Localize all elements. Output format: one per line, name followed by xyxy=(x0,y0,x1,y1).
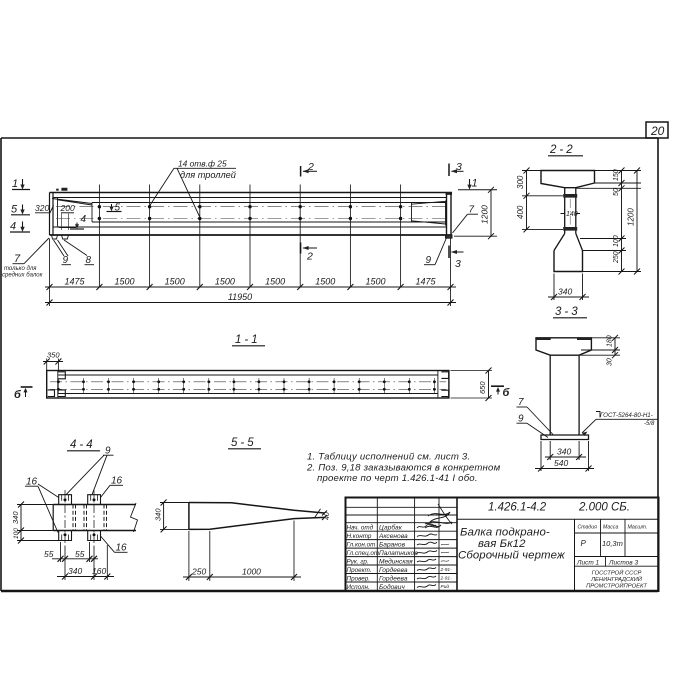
svg-text:Царбак: Царбак xyxy=(379,524,403,532)
svg-text:3-3: 3-3 xyxy=(555,306,581,318)
svg-text:проекте по черт 1.426.1-41 I: проекте по черт 1.426.1-41 I обо. xyxy=(317,473,478,484)
svg-text:Мединская: Мединская xyxy=(379,558,413,566)
svg-text:150: 150 xyxy=(613,169,620,181)
svg-text:1000: 1000 xyxy=(242,567,261,577)
svg-text:50: 50 xyxy=(613,188,620,196)
svg-text:Гордеева: Гордеева xyxy=(379,566,408,574)
svg-text:250: 250 xyxy=(613,251,620,264)
svg-text:2-2: 2-2 xyxy=(549,144,576,156)
svg-text:4-4: 4-4 xyxy=(70,439,96,451)
svg-text:2: 2 xyxy=(306,251,313,263)
svg-text:2-91-: 2-91- xyxy=(440,567,453,573)
svg-text:2. Поз. 9,18 заказываются в ко: 2. Поз. 9,18 заказываются в конкретном xyxy=(306,463,501,474)
svg-text:1. Таблицу исполнений см. лис: 1. Таблицу исполнений см. лист 3. xyxy=(307,452,470,463)
svg-text:Гл.кон.от: Гл.кон.от xyxy=(347,542,376,549)
svg-text:Исполн.: Исполн. xyxy=(347,584,370,591)
svg-text:180: 180 xyxy=(607,335,614,347)
svg-text:11950: 11950 xyxy=(228,292,252,302)
svg-text:350: 350 xyxy=(47,351,60,360)
svg-text:1475: 1475 xyxy=(415,277,436,287)
svg-text:20: 20 xyxy=(650,124,665,138)
svg-text:б: б xyxy=(503,387,511,399)
svg-text:ЛЕНИНГРАДСКИЙ: ЛЕНИНГРАДСКИЙ xyxy=(590,575,643,583)
svg-text:Проект.: Проект. xyxy=(347,567,372,574)
svg-text:540: 540 xyxy=(554,458,568,468)
svg-text:200: 200 xyxy=(60,203,75,213)
svg-text:Аксенова: Аксенова xyxy=(378,533,408,540)
svg-text:5: 5 xyxy=(11,204,18,216)
svg-text:340: 340 xyxy=(558,287,572,297)
svg-text:1500: 1500 xyxy=(265,277,285,287)
svg-text:Нач. отд: Нач. отд xyxy=(347,524,374,532)
svg-text:140: 140 xyxy=(566,211,578,218)
svg-text:340: 340 xyxy=(68,566,82,576)
svg-text:Гордеева: Гордеева xyxy=(379,575,408,583)
svg-text:340: 340 xyxy=(557,447,571,457)
svg-text:Провер.: Провер. xyxy=(347,576,370,583)
svg-text:1500: 1500 xyxy=(215,277,235,287)
svg-text:1: 1 xyxy=(12,178,18,190)
svg-text:Палатников: Палатников xyxy=(379,550,418,557)
svg-text:1200: 1200 xyxy=(480,205,490,224)
svg-text:340: 340 xyxy=(154,508,163,521)
svg-text:Сборочный чертеж: Сборочный чертеж xyxy=(458,550,566,562)
svg-text:Р: Р xyxy=(581,539,587,548)
svg-text:-5/8: -5/8 xyxy=(644,421,655,427)
svg-text:4: 4 xyxy=(10,221,16,233)
svg-text:100: 100 xyxy=(613,235,620,247)
svg-text:Н.контр: Н.контр xyxy=(347,533,372,540)
svg-text:Масшт.: Масшт. xyxy=(628,525,648,531)
svg-text:ГОССТРОЙ СССР: ГОССТРОЙ СССР xyxy=(592,569,642,577)
svg-text:1500: 1500 xyxy=(365,277,385,287)
svg-text:1500: 1500 xyxy=(165,277,185,287)
svg-text:4: 4 xyxy=(81,214,87,225)
svg-text:1500: 1500 xyxy=(114,277,134,287)
svg-text:б: б xyxy=(14,389,22,401)
svg-text:для троллей: для троллей xyxy=(180,170,236,180)
svg-text:Рид: Рид xyxy=(441,584,450,590)
svg-text:Лист 1: Лист 1 xyxy=(576,559,600,566)
svg-text:2-91-: 2-91- xyxy=(440,576,453,582)
svg-text:только для: только для xyxy=(4,266,37,272)
svg-text:400: 400 xyxy=(516,205,525,219)
svg-text:Рук. гр.: Рук. гр. xyxy=(347,559,369,566)
svg-text:2: 2 xyxy=(307,161,314,173)
svg-text:10,3т: 10,3т xyxy=(602,539,623,548)
svg-text:3: 3 xyxy=(456,161,462,173)
svg-text:1.426.1-4.2: 1.426.1-4.2 xyxy=(488,502,547,514)
svg-text:ГОСТ-5264-80-Н1-: ГОСТ-5264-80-Н1- xyxy=(600,412,653,419)
svg-text:7: 7 xyxy=(518,397,524,408)
svg-text:55: 55 xyxy=(44,549,54,559)
svg-text:Масса: Масса xyxy=(603,525,618,531)
svg-text:Баранов: Баранов xyxy=(379,542,406,549)
svg-text:40: 40 xyxy=(324,512,331,520)
svg-text:2.000 СБ.: 2.000 СБ. xyxy=(578,502,630,514)
svg-text:100: 100 xyxy=(13,528,20,539)
svg-text:55: 55 xyxy=(75,549,85,559)
svg-text:30: 30 xyxy=(607,358,614,366)
svg-text:Гл.спец.от: Гл.спец.от xyxy=(347,550,380,557)
svg-text:Бодович: Бодович xyxy=(379,583,405,591)
svg-text:средних балок: средних балок xyxy=(2,273,44,279)
svg-text:7: 7 xyxy=(14,253,21,265)
svg-text:160: 160 xyxy=(92,566,106,576)
svg-text:14 отв.ф 25: 14 отв.ф 25 xyxy=(178,159,227,169)
svg-text:1200: 1200 xyxy=(627,208,636,226)
svg-text:ПРОМСТРОЙПРОЕКТ: ПРОМСТРОЙПРОЕКТ xyxy=(586,582,647,590)
svg-text:Листов 3: Листов 3 xyxy=(608,559,638,566)
svg-text:Балка подкрано-: Балка подкрано- xyxy=(460,527,550,539)
svg-text:320: 320 xyxy=(35,203,49,213)
svg-text:250: 250 xyxy=(191,567,206,577)
svg-text:Стадия: Стадия xyxy=(578,525,598,531)
svg-text:1475: 1475 xyxy=(64,277,85,287)
svg-text:1500: 1500 xyxy=(315,277,335,287)
svg-text:3: 3 xyxy=(455,258,461,270)
svg-text:1: 1 xyxy=(472,178,478,190)
svg-text:300: 300 xyxy=(516,175,525,189)
svg-text:650: 650 xyxy=(478,381,487,394)
svg-text:5-5: 5-5 xyxy=(231,437,257,449)
svg-text:340: 340 xyxy=(11,511,20,524)
svg-text:1-1: 1-1 xyxy=(235,334,261,346)
svg-text:вая Бк12: вая Бк12 xyxy=(478,538,526,550)
